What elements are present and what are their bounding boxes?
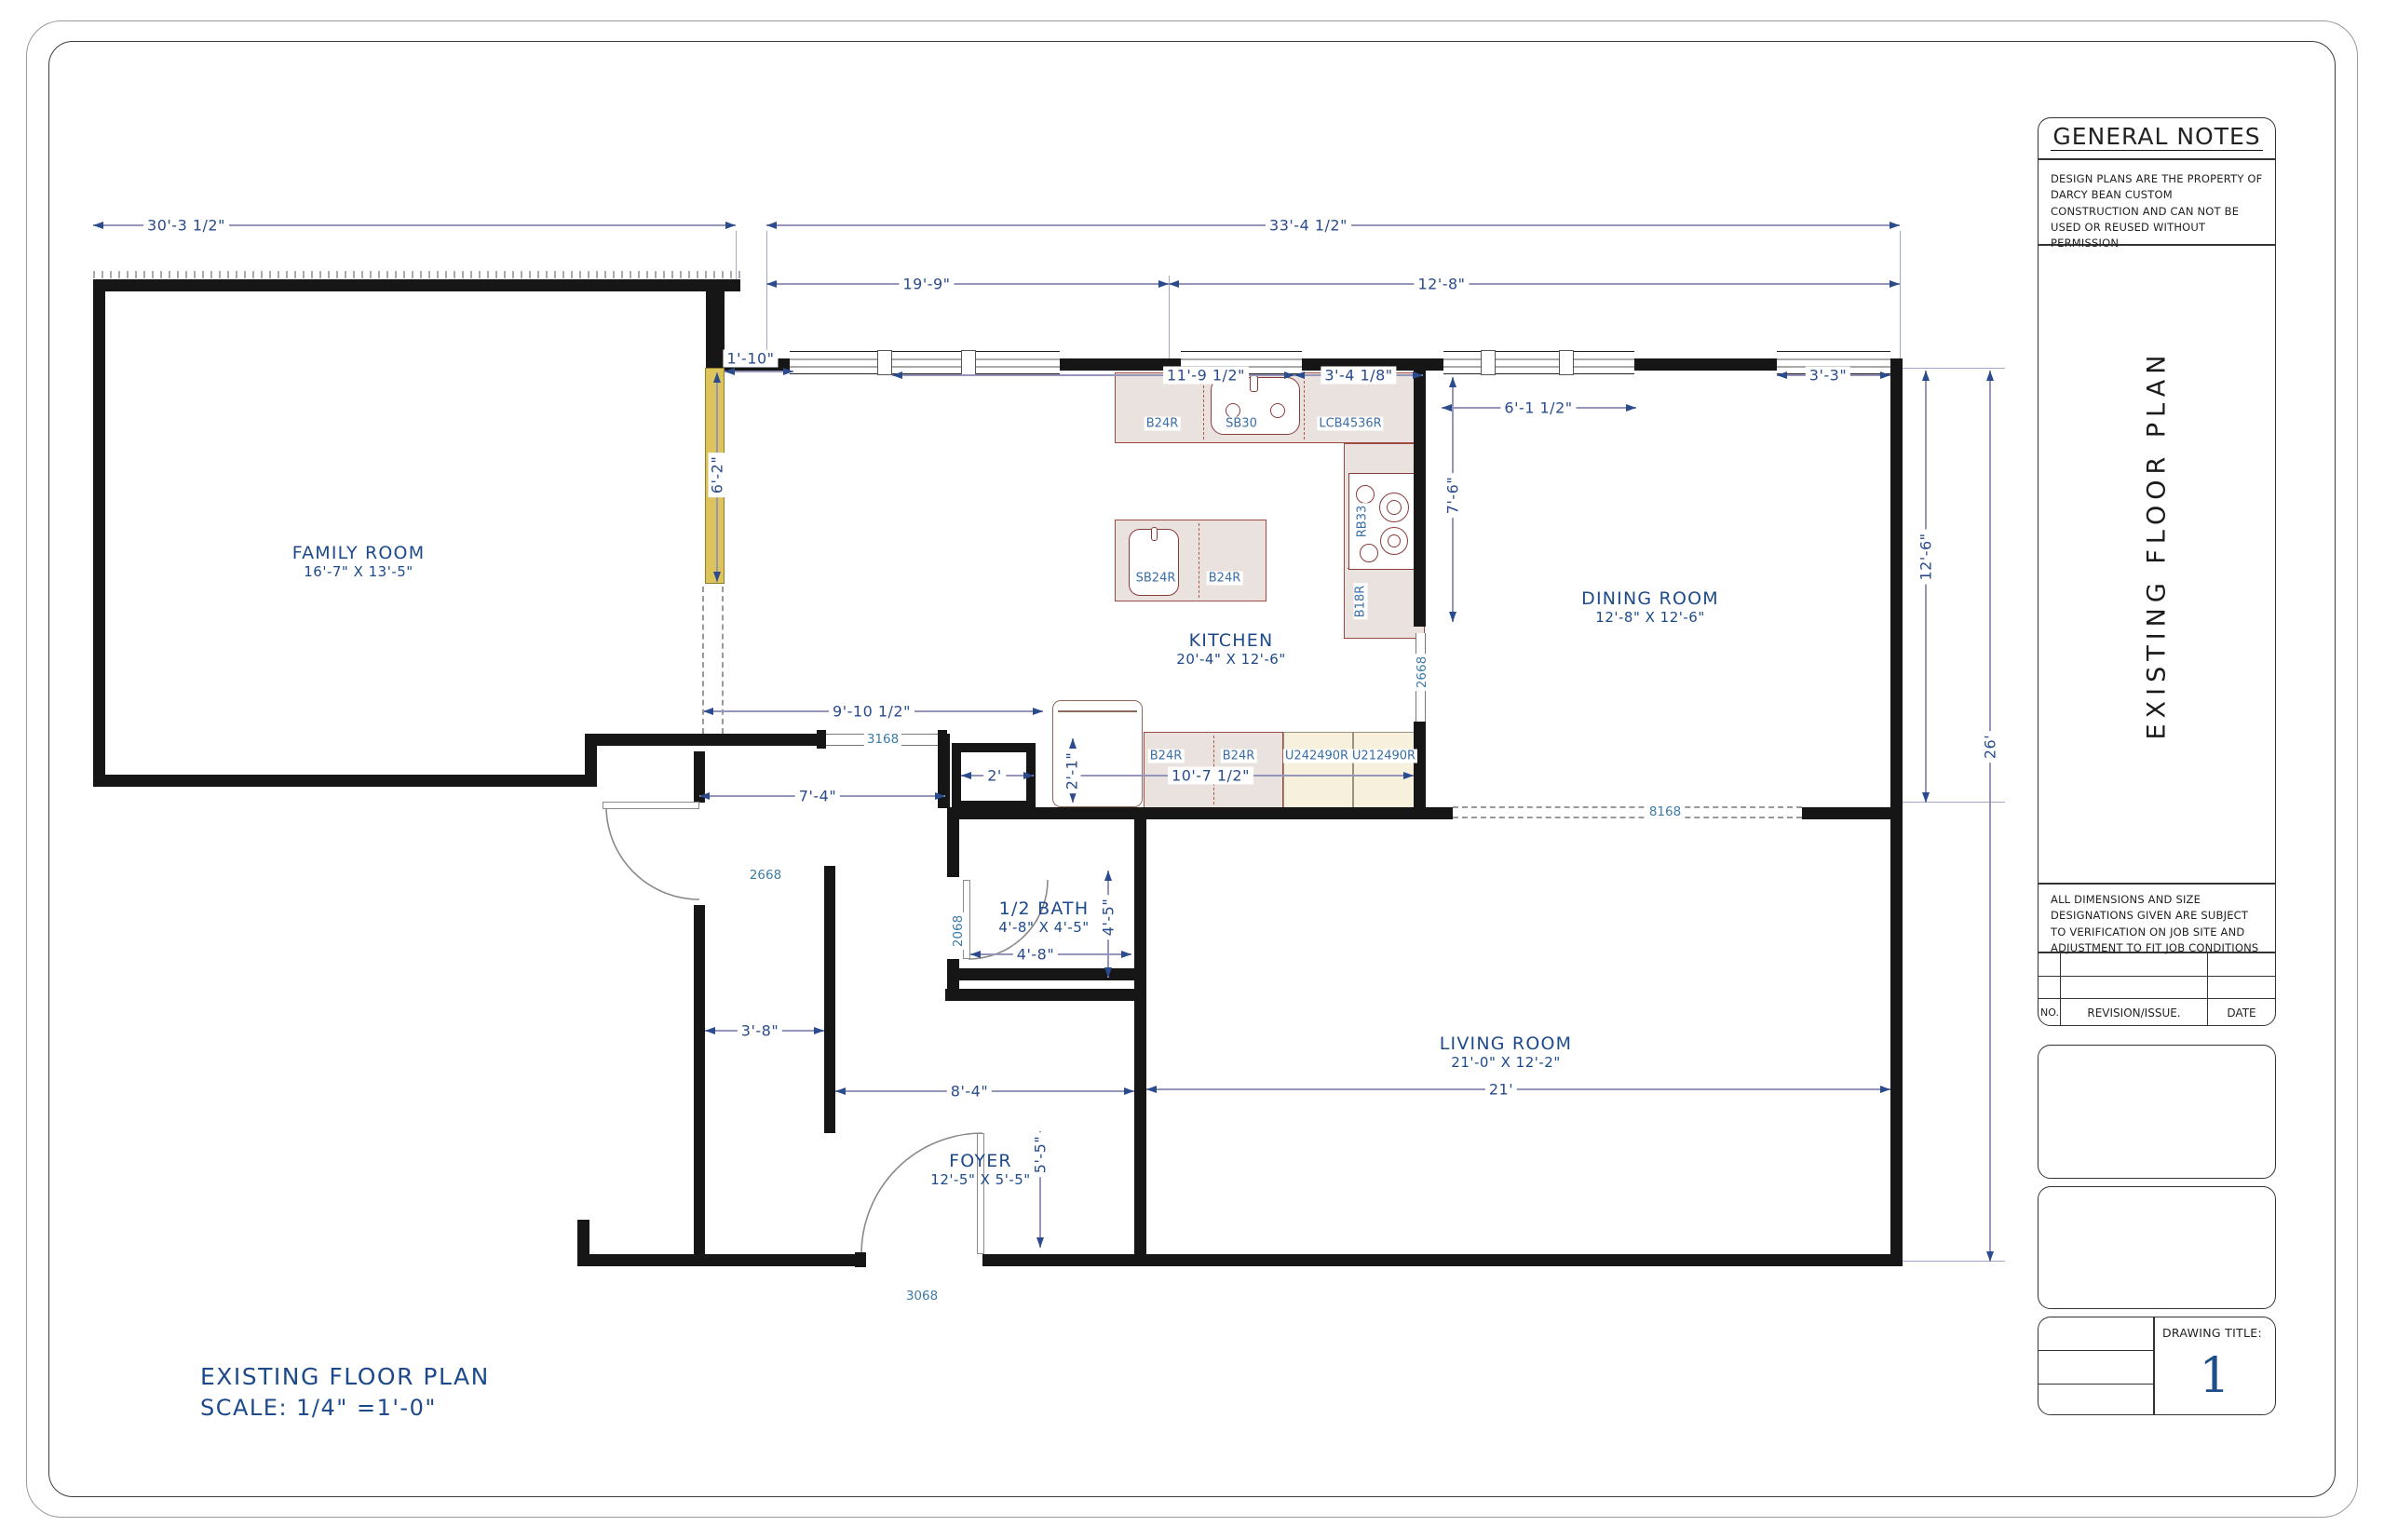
dim-arrow [1124, 1087, 1134, 1095]
cabinet-divider [1199, 523, 1199, 598]
dim-arrow [1104, 967, 1112, 978]
window-mullion [877, 350, 892, 375]
cabinet-label: U242490R [1283, 750, 1350, 763]
dim-label: 8'-4" [947, 1083, 992, 1101]
dim-arrow [725, 222, 736, 229]
window-mullion [961, 350, 976, 375]
dim-line [1169, 283, 1900, 285]
room-label-family: FAMILY ROOM 16'-7" X 13'-5" [292, 543, 426, 580]
cabinet-label: B24R [1148, 750, 1185, 763]
drawing-title-label: DRAWING TITLE: [2162, 1326, 2272, 1340]
room-label-bath: 1/2 BATH 4'-8" X 4'-5" [998, 898, 1089, 936]
divider [2038, 998, 2276, 999]
dim-arrow [970, 951, 981, 958]
cabinet-label: SB24R [1134, 572, 1178, 586]
dim-line [1989, 371, 1991, 1262]
dim-arrow [766, 222, 777, 229]
wall-segment [93, 775, 596, 787]
dim-arrow [1413, 371, 1423, 379]
dim-arrow [835, 1087, 846, 1095]
room-label-foyer: FOYER 12'-5" X 5'-5" [930, 1151, 1030, 1188]
room-name: FOYER [930, 1151, 1030, 1171]
divider [2038, 883, 2276, 885]
dim-label: 6'-1 1/2" [1500, 399, 1576, 417]
dim-arrow [1880, 371, 1890, 379]
rev-col-label: REVISION/ISSUE. [2061, 1006, 2207, 1020]
dim-arrow [705, 1027, 715, 1034]
dim-arrow [783, 368, 793, 375]
dim-label: 4'-8" [1013, 946, 1058, 964]
cabinet-divider [1203, 376, 1204, 439]
wall-segment [706, 291, 725, 368]
dim-arrow [1403, 772, 1414, 779]
dim-arrow [1169, 280, 1179, 288]
appliance-detail [1058, 710, 1137, 712]
room-label-kitchen: KITCHEN 20'-4" X 12'-6" [1176, 630, 1285, 668]
cabinet-label: B24R [1145, 417, 1181, 431]
dim-arrow [1036, 1237, 1044, 1248]
cabinet-label: RB33 [1356, 504, 1370, 540]
dim-arrow [1626, 404, 1636, 412]
room-size: 12'-8" X 12'-6" [1581, 609, 1719, 626]
dim-label: 12'-6" [1917, 529, 1935, 584]
dim-arrow [703, 708, 713, 715]
cabinet-divider [1352, 733, 1354, 807]
cabinet-divider [1304, 376, 1305, 439]
wall-segment [1414, 722, 1426, 807]
dim-label: 2' [983, 767, 1006, 785]
door-jamb [817, 730, 826, 749]
dim-arrow [1121, 951, 1131, 958]
wall-segment [585, 734, 824, 746]
room-label-dining: DINING ROOM 12'-8" X 12'-6" [1581, 588, 1719, 626]
dim-arrow [1033, 708, 1043, 715]
upper-cabinets [1283, 732, 1415, 808]
room-label-living: LIVING ROOM 21'-0" X 12'-2" [1440, 1033, 1572, 1071]
dim-label: 7'-4" [795, 788, 840, 805]
dim-arrow [1890, 222, 1900, 229]
room-size: 16'-7" X 13'-5" [292, 563, 426, 580]
dim-label: 7'-6" [1444, 473, 1462, 518]
room-size: 4'-8" X 4'-5" [998, 919, 1089, 936]
dim-arrow [725, 368, 735, 375]
divider [2038, 1350, 2153, 1351]
dim-label: 6'-2" [709, 453, 726, 497]
wall-segment [1414, 371, 1426, 627]
dim-label: 10'-7 1/2" [1168, 767, 1253, 785]
opening-label: 3068 [903, 1289, 941, 1304]
opening-label: 2068 [951, 912, 966, 950]
door-leaf [603, 802, 699, 809]
dim-arrow [1284, 371, 1294, 379]
dim-arrow [93, 222, 103, 229]
dim-label: 9'-10 1/2" [829, 703, 914, 721]
dim-label: 21' [1485, 1081, 1517, 1099]
dim-arrow [1922, 792, 1930, 803]
dim-arrow [1890, 280, 1900, 288]
sheet-side-title: EXISTING FLOOR PLAN [2143, 350, 2172, 740]
wall-segment [694, 905, 705, 1254]
dim-label: 4'-5" [1100, 895, 1117, 939]
rev-col-no: NO. [2038, 1006, 2062, 1019]
cabinet-label: LCB4536R [1317, 417, 1383, 431]
dim-label: 30'-3 1/2" [143, 217, 229, 235]
wall-segment [982, 1254, 1903, 1266]
room-name: LIVING ROOM [1440, 1033, 1572, 1054]
dim-label: 1'-10" [723, 350, 778, 368]
wall-segment [1890, 358, 1903, 1266]
dim-label: 3'-3" [1806, 367, 1850, 385]
wall-segment [1802, 807, 1903, 819]
cabinet-label: U212490R [1350, 750, 1417, 763]
dim-arrow [1023, 772, 1034, 779]
dim-line [766, 283, 1169, 285]
plan-title: EXISTING FLOOR PLAN [200, 1363, 490, 1390]
dim-arrow [1986, 371, 1994, 381]
dim-line [1925, 371, 1927, 803]
burner-inner [1388, 534, 1401, 547]
rev-col-date: DATE [2208, 1006, 2275, 1020]
dim-label: 33'-4 1/2" [1266, 217, 1351, 235]
dim-arrow [1777, 371, 1787, 379]
dim-label: 2'-1" [1063, 749, 1081, 793]
divider [2153, 1317, 2155, 1415]
dim-arrow [1158, 280, 1169, 288]
wall-segment [577, 1220, 589, 1266]
wall-segment [93, 279, 740, 291]
drawing-number: 1 [2199, 1348, 2229, 1404]
dim-arrow [1922, 371, 1930, 381]
dim-arrow [1069, 792, 1077, 803]
dimensions-note: ALL DIMENSIONS AND SIZE DESIGNATIONS GIV… [2051, 892, 2263, 956]
divider [2038, 976, 2276, 977]
wall-segment [93, 279, 105, 787]
wall-segment [945, 989, 1145, 1001]
faucet [1151, 527, 1158, 541]
burner-inner [1387, 500, 1402, 515]
dim-arrow [1146, 1086, 1157, 1093]
window [1443, 351, 1634, 374]
general-notes-body: DESIGN PLANS ARE THE PROPERTY OF DARCY B… [2051, 171, 2263, 251]
title-block-panel-3 [2038, 1186, 2276, 1309]
room-size: 12'-5" X 5'-5" [930, 1171, 1030, 1188]
divider [2038, 1384, 2153, 1385]
burner [1356, 485, 1375, 504]
dim-label: 3'-8" [738, 1022, 782, 1040]
dim-arrow [1069, 738, 1077, 749]
opening-label: 8168 [1646, 804, 1684, 819]
cabinet-label: B24R [1221, 750, 1257, 763]
dim-label: 26' [1982, 731, 1999, 763]
dim-label: 12'-8" [1414, 276, 1469, 293]
dim-arrow [935, 792, 945, 800]
sink-drain [1270, 403, 1285, 418]
dim-arrow [713, 572, 721, 582]
dim-label: 19'-9" [899, 276, 954, 293]
opening-label: 2668 [747, 868, 784, 883]
drawing-sheet: 30'-3 1/2" 33'-4 1/2" 19'-9" 12'-8" 1'-1… [0, 0, 2384, 1540]
dim-arrow [766, 280, 777, 288]
burner [1360, 544, 1378, 562]
window [790, 351, 1060, 374]
cabinet-label: B24R [1207, 572, 1243, 586]
wall-segment [1134, 819, 1146, 1266]
wall-segment [577, 1254, 866, 1266]
faucet [1250, 375, 1258, 392]
room-name: DINING ROOM [1581, 588, 1719, 609]
dim-label: 3'-4 1/8" [1321, 367, 1396, 385]
dim-arrow [1442, 404, 1452, 412]
room-size: 20'-4" X 12'-6" [1176, 651, 1285, 668]
dim-arrow [814, 1027, 824, 1034]
dim-arrow [1449, 612, 1456, 622]
dim-arrow [1880, 1086, 1890, 1093]
dim-arrow [1294, 371, 1305, 379]
wall-segment [959, 968, 1145, 980]
plan-scale: SCALE: 1/4" =1'-0" [200, 1395, 437, 1421]
opening-label: 2668 [1415, 654, 1429, 691]
room-name: 1/2 BATH [998, 898, 1089, 919]
dim-line [1146, 1088, 1890, 1090]
dim-label: 5'-5" [1032, 1132, 1050, 1177]
wall-segment [824, 866, 835, 1133]
title-block-panel-2 [2038, 1045, 2276, 1179]
cabinet-label: B18R [1354, 584, 1368, 620]
dim-arrow [1986, 1251, 1994, 1262]
room-name: KITCHEN [1176, 630, 1285, 651]
wall-segment [947, 819, 959, 877]
dim-arrow [1104, 871, 1112, 881]
cabinet-label: SB30 [1224, 417, 1259, 431]
dim-label: 11'-9 1/2" [1163, 367, 1249, 385]
general-notes-title: GENERAL NOTES [2038, 123, 2276, 150]
door-jamb [855, 1252, 866, 1267]
window-mullion [1481, 350, 1496, 375]
divider [2038, 158, 2276, 160]
dim-arrow [961, 772, 971, 779]
dim-arrow [1449, 377, 1456, 387]
dim-arrow [699, 792, 710, 800]
dim-arrow [892, 371, 902, 379]
dim-arrow [713, 372, 721, 383]
opening-label: 3168 [864, 732, 901, 747]
window-mullion [1559, 350, 1574, 375]
room-size: 21'-0" X 12'-2" [1440, 1054, 1572, 1071]
room-name: FAMILY ROOM [292, 543, 426, 563]
